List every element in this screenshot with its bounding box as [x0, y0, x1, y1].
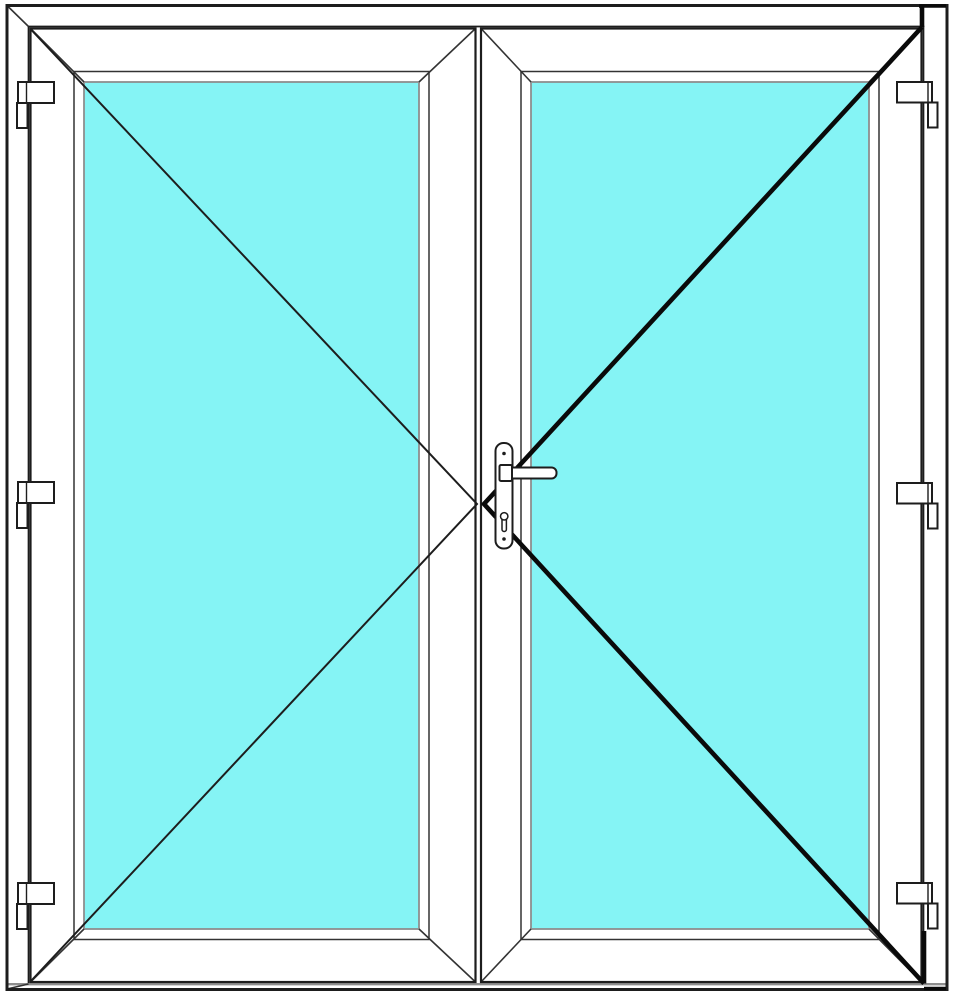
handle-screw	[502, 537, 506, 541]
handle-lever	[507, 468, 557, 479]
handle-screw	[502, 452, 506, 456]
keyhole	[501, 513, 508, 520]
glazing-left	[74, 72, 429, 940]
glazing-right	[521, 72, 879, 940]
glass-pane-right	[531, 82, 869, 929]
handle-backplate	[496, 443, 513, 549]
glass-pane-left	[84, 82, 419, 929]
door-technical-drawing	[0, 0, 956, 1000]
handle-hub	[500, 465, 513, 481]
door-drawing-canvas	[0, 0, 956, 1000]
